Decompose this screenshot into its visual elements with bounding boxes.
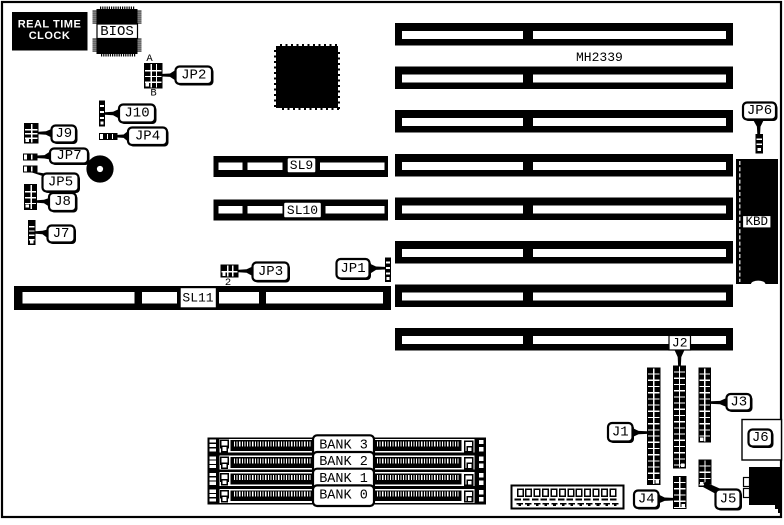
svg-text:J5: J5 [720, 491, 737, 507]
svg-text:JP5: JP5 [48, 175, 73, 191]
svg-text:SL9: SL9 [290, 158, 313, 173]
svg-text:JP6: JP6 [747, 103, 772, 119]
svg-text:BIOS: BIOS [100, 24, 134, 40]
svg-text:J3: J3 [730, 394, 747, 410]
svg-text:BANK 0: BANK 0 [319, 489, 368, 504]
svg-text:J2: J2 [672, 336, 688, 351]
svg-text:A: A [146, 53, 153, 65]
svg-text:KBD: KBD [745, 215, 768, 229]
svg-text:REAL TIME: REAL TIME [18, 19, 82, 31]
svg-text:JP1: JP1 [340, 261, 365, 277]
svg-text:CLOCK: CLOCK [29, 30, 71, 42]
svg-text:MH2339: MH2339 [576, 50, 623, 65]
svg-text:JP3: JP3 [258, 264, 283, 280]
svg-text:J8: J8 [54, 194, 71, 210]
svg-text:JP4: JP4 [135, 128, 160, 144]
svg-text:J4: J4 [638, 491, 655, 507]
svg-text:JP7: JP7 [56, 148, 81, 164]
svg-text:SL11: SL11 [182, 291, 213, 306]
svg-text:B: B [150, 88, 156, 100]
svg-text:J9: J9 [55, 126, 72, 142]
svg-text:J10: J10 [124, 106, 149, 122]
svg-text:J7: J7 [53, 226, 70, 242]
svg-text:JP2: JP2 [181, 67, 206, 83]
svg-text:SL10: SL10 [287, 203, 318, 218]
svg-text:J1: J1 [612, 424, 629, 440]
svg-text:J6: J6 [752, 430, 769, 446]
svg-text:2: 2 [225, 277, 231, 289]
